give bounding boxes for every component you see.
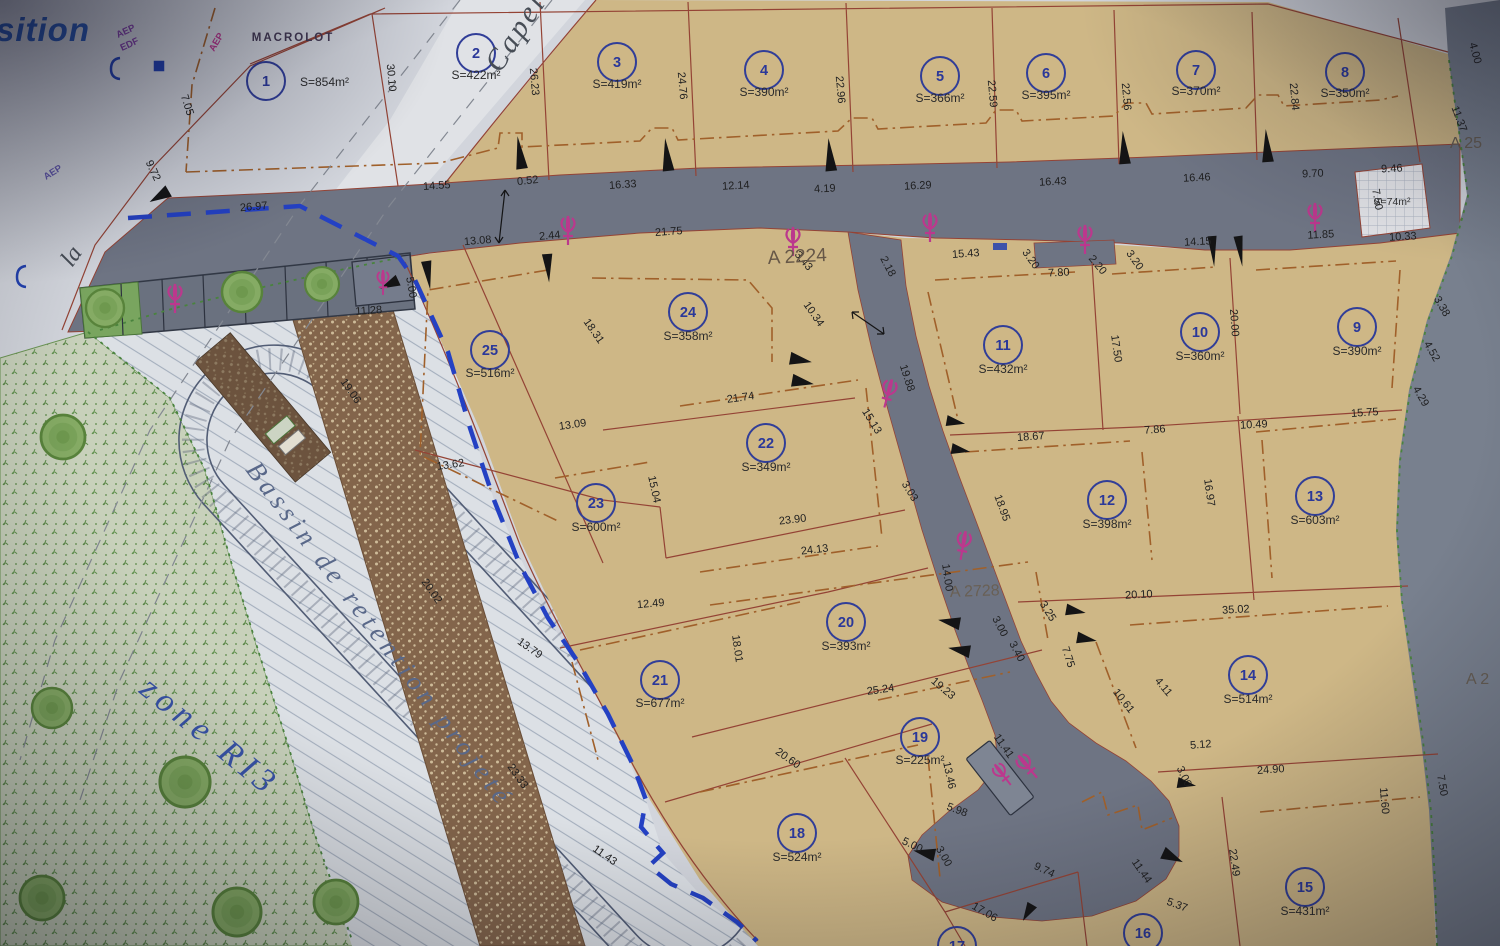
subdivision-plan-screenshot: 1S=854m² 2S=422m² 3S=419m² 4S=390m² 5S=3…	[0, 0, 1500, 946]
vignette-topright	[0, 0, 1500, 946]
